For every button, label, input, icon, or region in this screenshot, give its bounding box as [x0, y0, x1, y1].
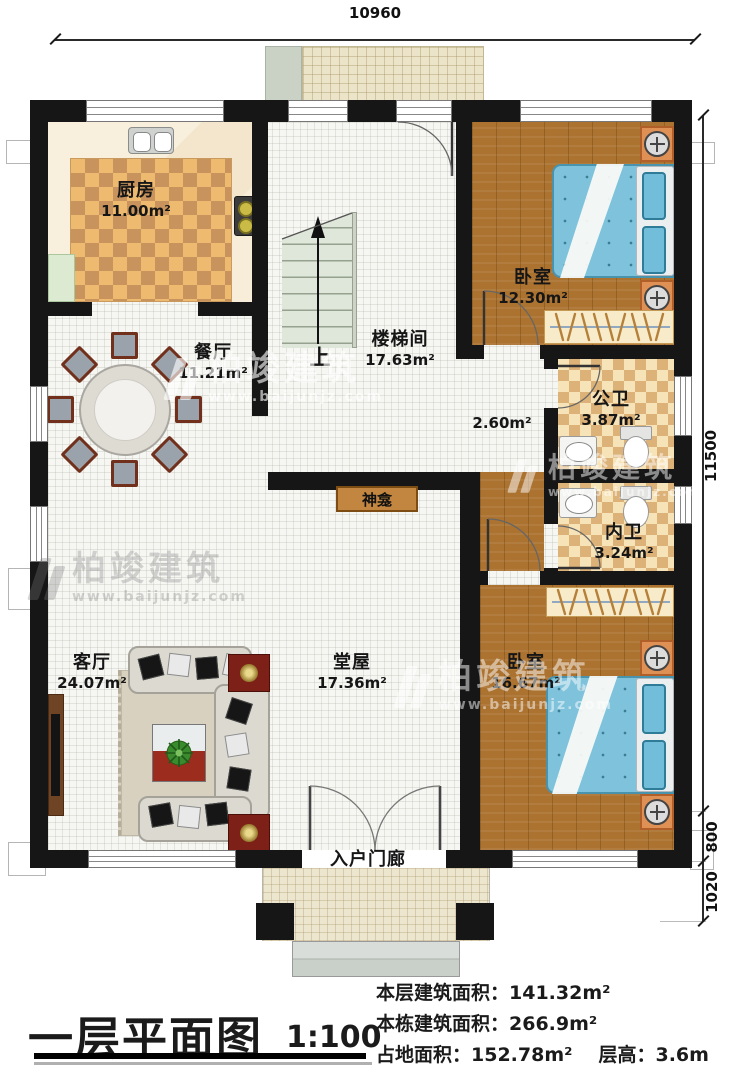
toilet — [620, 426, 650, 468]
pillow — [642, 684, 666, 734]
nightstand — [640, 126, 674, 162]
dining-chair — [111, 332, 138, 359]
wall — [456, 122, 472, 359]
window — [88, 850, 236, 868]
dining-chair — [175, 396, 202, 423]
stair-rail — [352, 212, 357, 348]
tv-screen — [51, 714, 60, 796]
wardrobe — [546, 587, 674, 617]
wall — [48, 302, 92, 316]
wall — [460, 472, 480, 850]
dimension-right-mid: 800 — [703, 807, 721, 867]
corner-table — [228, 814, 270, 852]
pillow — [642, 740, 666, 790]
wall — [558, 469, 674, 483]
bay-window-box — [8, 568, 32, 610]
plan-scale: 1:100 — [286, 1020, 382, 1055]
wall — [198, 302, 268, 316]
cushion — [167, 653, 192, 678]
wall — [480, 571, 488, 585]
room-label-dining: 餐厅 11.21m² — [178, 342, 248, 382]
dining-chair — [47, 396, 74, 423]
wall — [544, 359, 558, 369]
window — [86, 100, 224, 122]
room-label-stairwell: 楼梯间 17.63m² — [365, 329, 435, 369]
cushion — [177, 805, 201, 829]
wall — [540, 571, 674, 585]
cushion — [224, 732, 249, 757]
dimension-line — [702, 116, 704, 922]
porch-pillar — [256, 903, 294, 940]
dining-chair — [111, 460, 138, 487]
room-label-lobby: 2.60m² — [472, 414, 531, 432]
room-label-bedroom-bottom: 卧室 16.67m² — [491, 652, 561, 692]
dimension-right-main: 11500 — [702, 421, 720, 491]
stairs-up-label: 上 — [310, 345, 331, 370]
window — [512, 850, 638, 868]
pillow — [642, 172, 666, 220]
kitchen-sink — [128, 127, 174, 154]
area-statistics: 本层建筑面积：141.32m² 本栋建筑面积：266.9m² 占地面积：152.… — [376, 978, 709, 1071]
wall — [544, 408, 558, 524]
dining-table-top — [94, 379, 156, 441]
wardrobe — [544, 310, 674, 344]
stat-building-area: 本栋建筑面积：266.9m² — [376, 1009, 709, 1040]
bathroom-sink — [559, 436, 597, 466]
cushion — [195, 656, 219, 680]
window — [30, 506, 48, 562]
cushion — [148, 802, 173, 827]
title-underline — [34, 1053, 366, 1059]
balcony-door-opening — [396, 100, 452, 122]
wall — [456, 345, 484, 359]
window — [674, 376, 692, 436]
dimension-line — [55, 39, 695, 41]
stat-land-area-and-height: 占地面积：152.78m²层高：3.6m — [376, 1040, 709, 1071]
corner-table — [228, 654, 270, 692]
window — [30, 386, 48, 442]
bathroom-sink — [559, 488, 597, 518]
room-label-living: 客厅 24.07m² — [57, 652, 127, 692]
cushion — [205, 802, 230, 827]
porch-pillar — [456, 903, 494, 940]
shrine-label: 神龛 — [362, 489, 392, 510]
wall — [30, 100, 48, 868]
room-label-bath-public: 公卫 3.87m² — [581, 389, 640, 429]
coffee-table — [152, 724, 206, 782]
window — [674, 486, 692, 524]
room-label-hall: 堂屋 17.36m² — [317, 652, 387, 692]
pillow — [642, 226, 666, 274]
room-label-bedroom-top: 卧室 12.30m² — [498, 267, 568, 307]
cushion — [226, 766, 251, 791]
entrance-steps — [292, 941, 460, 977]
kitchen-cabinet — [48, 254, 75, 302]
stat-floor-area: 本层建筑面积：141.32m² — [376, 978, 709, 1009]
room-label-porch: 入户门廊 — [330, 849, 406, 871]
window — [288, 100, 348, 122]
room-label-bath-private: 内卫 3.24m² — [594, 522, 653, 562]
nightstand — [640, 794, 674, 830]
wall — [540, 345, 692, 359]
extension-line — [660, 921, 706, 922]
wall — [252, 122, 268, 316]
dimension-top: 10960 — [340, 4, 410, 22]
floor-plan-page: { "dims": { "top": "10960", "right_main"… — [0, 0, 750, 1081]
window — [520, 100, 652, 122]
nightstand — [640, 640, 674, 676]
wall — [252, 316, 268, 416]
shrine-cabinet: 神龛 — [336, 486, 418, 512]
hallway-floor — [480, 472, 544, 571]
room-label-kitchen: 厨房 11.00m² — [101, 180, 171, 220]
dimension-right-low: 1020 — [703, 862, 721, 922]
title-underline-shadow — [34, 1062, 372, 1065]
wall — [674, 100, 692, 862]
